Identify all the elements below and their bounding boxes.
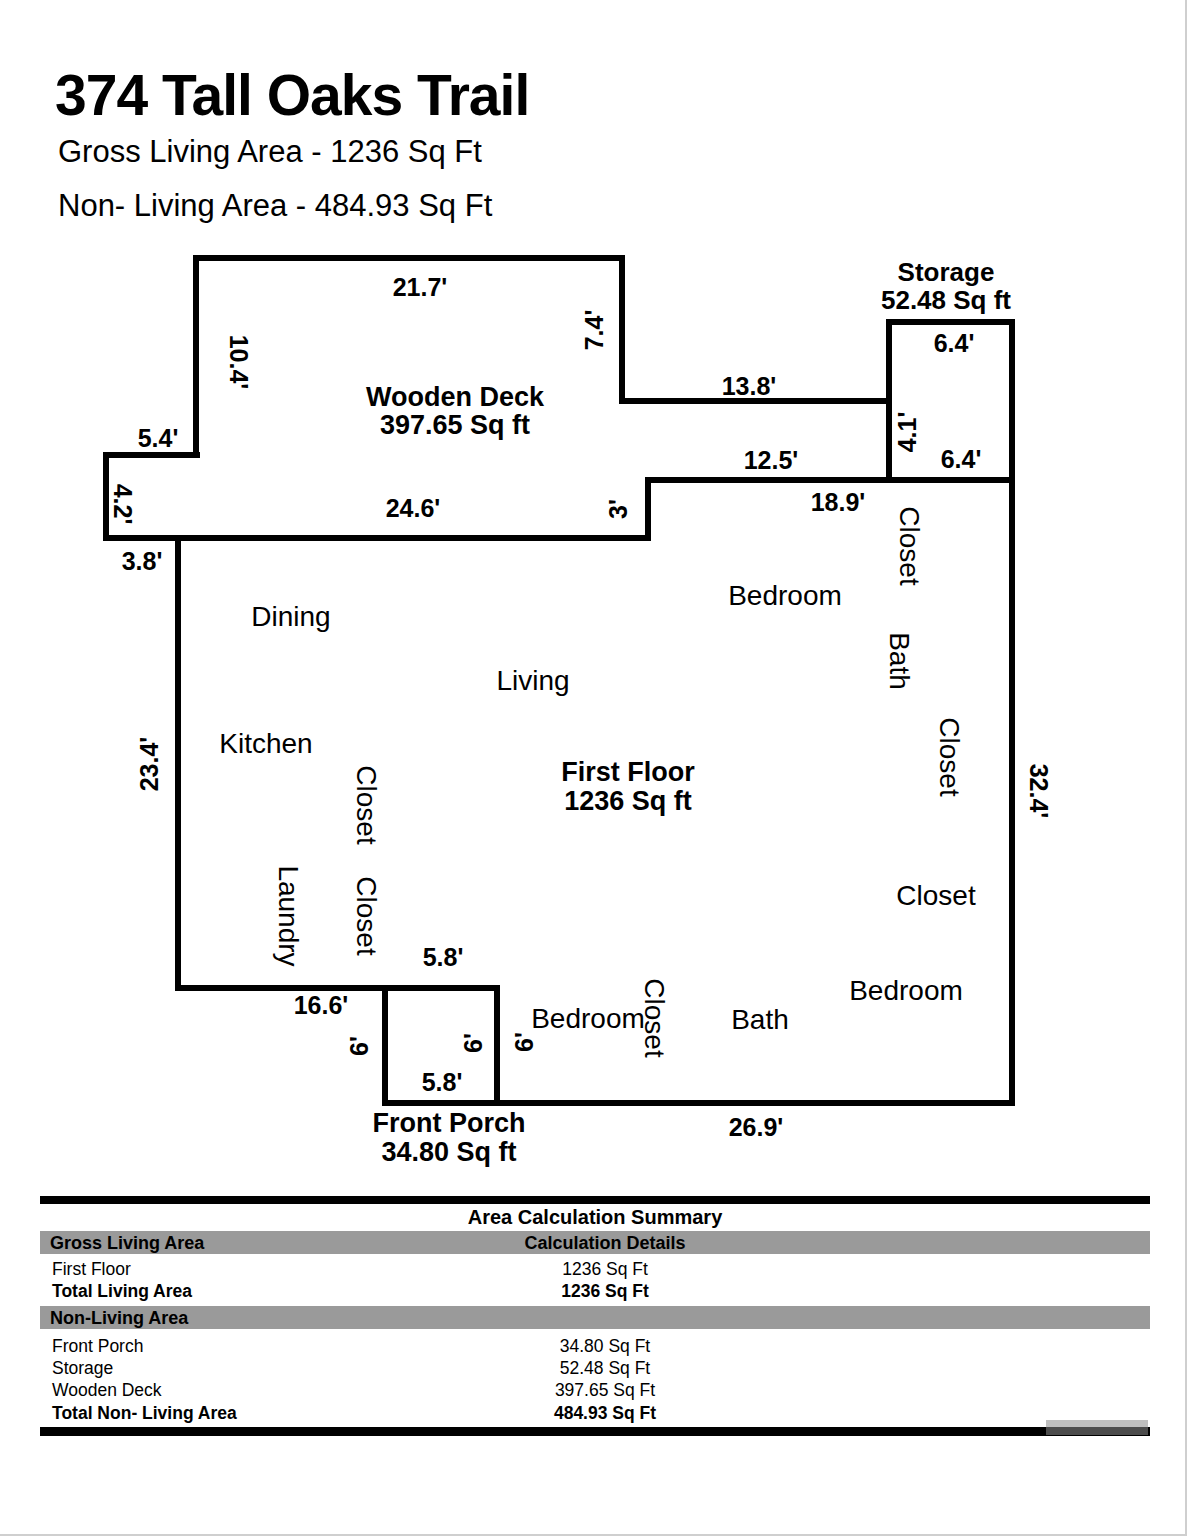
- dim-notch-top: 5.4': [138, 424, 179, 453]
- row-label: First Floor: [52, 1259, 131, 1280]
- row-label: Total Non- Living Area: [52, 1403, 237, 1424]
- wall-storage-left: [886, 319, 892, 483]
- room-bedroom-ne: Bedroom: [728, 580, 842, 612]
- room-closet-mid-lower: Closet: [350, 876, 382, 955]
- dim-step: 3': [604, 499, 633, 519]
- details-header-label: Calculation Details: [455, 1233, 755, 1254]
- summary-top-rule: [40, 1196, 1150, 1204]
- dim-storage-left: 4.1': [893, 412, 922, 453]
- dim-storage-top: 6.4': [934, 329, 975, 358]
- dim-porch-left: 6': [345, 1036, 374, 1056]
- dim-bottom-left: 16.6': [294, 991, 349, 1020]
- wall-porch-bottom: [382, 1100, 500, 1106]
- row-label: Wooden Deck: [52, 1380, 162, 1401]
- room-bath-s: Bath: [731, 1004, 789, 1036]
- table-row: Storage 52.48 Sq Ft: [40, 1358, 1150, 1380]
- porch-name: Front Porch: [373, 1108, 526, 1139]
- dim-notch-left: 4.2': [108, 484, 137, 525]
- room-kitchen: Kitchen: [219, 728, 312, 760]
- dim-right-wall: 32.4': [1024, 764, 1053, 819]
- floor-plan-page: 374 Tall Oaks Trail Gross Living Area - …: [0, 0, 1187, 1536]
- wall-right: [1009, 319, 1015, 1106]
- dim-left-wall: 23.4': [135, 737, 164, 792]
- wall-notch-top: [103, 452, 200, 458]
- room-bedroom-se: Bedroom: [849, 975, 963, 1007]
- row-value: 484.93 Sq Ft: [455, 1403, 755, 1424]
- wall-deck-bottom: [103, 535, 651, 541]
- room-closet-se: Closet: [896, 880, 975, 912]
- row-value: 1236 Sq Ft: [455, 1281, 755, 1302]
- dim-deck-right: 7.4': [580, 310, 609, 351]
- nonliving-header-label: Non-Living Area: [50, 1308, 188, 1329]
- porch-area: 34.80 Sq ft: [381, 1137, 516, 1168]
- wall-bottom-right: [494, 1100, 1015, 1106]
- row-value: 397.65 Sq Ft: [455, 1380, 755, 1401]
- dim-porch-inner: 6': [459, 1033, 488, 1053]
- row-value: 1236 Sq Ft: [455, 1259, 755, 1280]
- row-label: Storage: [52, 1358, 113, 1379]
- dim-porch-right: 6': [510, 1032, 539, 1052]
- watermark-smudge: [1046, 1420, 1148, 1435]
- table-row-total-living: Total Living Area 1236 Sq Ft: [40, 1281, 1150, 1303]
- room-laundry: Laundry: [272, 865, 304, 966]
- gross-living-area-line: Gross Living Area - 1236 Sq Ft: [58, 134, 482, 170]
- dim-left-offset: 3.8': [122, 547, 163, 576]
- dim-house-top-a: 12.5': [744, 446, 799, 475]
- summary-nonliving-header-bar: Non-Living Area: [40, 1306, 1150, 1329]
- deck-area: 397.65 Sq ft: [380, 410, 530, 441]
- first-floor-area: 1236 Sq ft: [564, 786, 692, 817]
- room-bedroom-s: Bedroom: [531, 1003, 645, 1035]
- wall-porch-right: [494, 985, 500, 1106]
- non-living-area-line: Non- Living Area - 484.93 Sq Ft: [58, 188, 492, 224]
- room-dining: Dining: [251, 601, 330, 633]
- row-label: Total Living Area: [52, 1281, 192, 1302]
- room-closet-ne: Closet: [893, 506, 925, 585]
- dim-porch-top: 5.8': [423, 943, 464, 972]
- dim-bottom-right: 26.9': [729, 1113, 784, 1142]
- room-bath-e: Bath: [883, 632, 915, 690]
- dim-deck-left: 10.4': [224, 335, 253, 390]
- storage-name: Storage: [898, 257, 995, 288]
- table-row-total-nonliving: Total Non- Living Area 484.93 Sq Ft: [40, 1403, 1150, 1425]
- dim-storage-bottom: 6.4': [941, 445, 982, 474]
- summary-bottom-rule: [40, 1427, 1150, 1436]
- dim-porch-bottom: 5.8': [422, 1068, 463, 1097]
- wall-left: [175, 535, 181, 991]
- wall-deck-right: [619, 255, 625, 404]
- dim-deck-bottom: 24.6': [386, 494, 441, 523]
- row-label: Front Porch: [52, 1336, 143, 1357]
- storage-area: 52.48 Sq ft: [881, 285, 1011, 316]
- wall-step: [645, 477, 651, 541]
- summary-living-header-bar: Gross Living Area Calculation Details: [40, 1231, 1150, 1254]
- table-row: First Floor 1236 Sq Ft: [40, 1259, 1150, 1281]
- dim-deck-top: 21.7': [393, 273, 448, 302]
- wall-storage-top: [886, 319, 1015, 325]
- wall-deck-left: [193, 255, 199, 458]
- summary-title: Area Calculation Summary: [40, 1206, 1150, 1229]
- living-header-label: Gross Living Area: [50, 1233, 204, 1254]
- wall-house-top: [645, 477, 1015, 483]
- wall-deck-top: [193, 255, 625, 261]
- row-value: 52.48 Sq Ft: [455, 1358, 755, 1379]
- room-closet-e: Closet: [933, 717, 965, 796]
- room-closet-mid-upper: Closet: [350, 765, 382, 844]
- first-floor-name: First Floor: [561, 757, 695, 788]
- wall-porch-left: [382, 985, 388, 1106]
- dim-house-top-b: 18.9': [811, 488, 866, 517]
- dim-deck-to-storage: 13.8': [722, 372, 777, 401]
- table-row: Front Porch 34.80 Sq Ft: [40, 1336, 1150, 1358]
- row-value: 34.80 Sq Ft: [455, 1336, 755, 1357]
- room-living: Living: [496, 665, 569, 697]
- deck-name: Wooden Deck: [366, 382, 544, 413]
- page-title: 374 Tall Oaks Trail: [55, 62, 529, 128]
- table-row: Wooden Deck 397.65 Sq Ft: [40, 1380, 1150, 1402]
